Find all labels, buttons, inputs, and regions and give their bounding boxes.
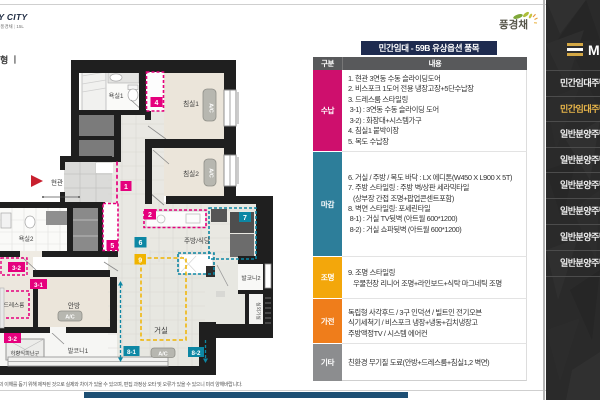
svg-text:8-2: 8-2 — [192, 350, 202, 357]
svg-text:안방: 안방 — [68, 301, 80, 310]
svg-text:3-1: 3-1 — [34, 282, 44, 289]
svg-text:A/C: A/C — [208, 168, 214, 178]
svg-text:A/C: A/C — [65, 315, 75, 321]
svg-text:A/C: A/C — [208, 103, 214, 113]
svg-text:2: 2 — [148, 212, 152, 219]
svg-text:현관: 현관 — [51, 178, 63, 187]
svg-text:발코니1: 발코니1 — [68, 347, 89, 355]
svg-text:7: 7 — [243, 215, 247, 222]
svg-text:6: 6 — [139, 240, 143, 247]
svg-text:1: 1 — [124, 184, 128, 191]
svg-text:침실1: 침실1 — [183, 99, 199, 108]
svg-text:드레스룸: 드레스룸 — [4, 301, 25, 309]
svg-text:실외기실: 실외기실 — [255, 302, 262, 320]
svg-text:8-1: 8-1 — [127, 349, 137, 356]
svg-text:3-2: 3-2 — [12, 265, 22, 272]
svg-text:주방/식당: 주방/식당 — [184, 236, 210, 245]
svg-text:욕실1: 욕실1 — [109, 92, 124, 100]
svg-text:거실: 거실 — [154, 325, 168, 335]
svg-text:4: 4 — [155, 100, 159, 107]
svg-text:A/C: A/C — [158, 352, 168, 358]
svg-text:9: 9 — [138, 257, 142, 264]
svg-text:침실2: 침실2 — [183, 169, 199, 178]
svg-text:3-2: 3-2 — [8, 336, 18, 343]
svg-text:발코니2: 발코니2 — [241, 274, 260, 282]
svg-text:하향식피난구: 하향식피난구 — [11, 349, 40, 357]
svg-text:욕실2: 욕실2 — [19, 235, 34, 243]
svg-text:5: 5 — [110, 243, 114, 250]
